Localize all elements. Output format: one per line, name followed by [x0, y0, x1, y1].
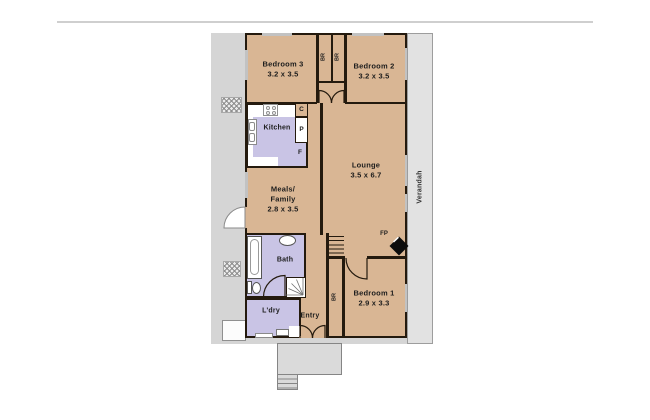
fireplace-label: FP: [380, 231, 388, 237]
entry-label: Entry: [301, 311, 320, 320]
room-name: Meals/: [271, 184, 295, 193]
door-arc: [332, 91, 345, 104]
fireplace-icon: [390, 237, 409, 256]
bedroom3-label: Bedroom 3 3.2 x 3.5: [263, 59, 304, 79]
room-dims: 3.2 x 3.5: [358, 71, 389, 80]
room-name: Bedroom 3: [263, 59, 304, 68]
meals-family-label: Meals/ Family 2.8 x 3.5: [268, 184, 299, 213]
plan-overlay: [0, 0, 650, 420]
door-arc: [319, 91, 332, 104]
exterior-door-arc: [224, 207, 245, 228]
room-dims: 3.5 x 6.7: [351, 170, 382, 179]
robe-label: BR: [321, 53, 327, 61]
fridge-label: F: [298, 150, 302, 157]
lounge-label: Lounge 3.5 x 6.7: [351, 160, 382, 180]
door-arc: [300, 326, 313, 339]
room-name: Bedroom 1: [354, 288, 395, 297]
room-name: Family: [271, 194, 296, 203]
room-dims: 2.9 x 3.3: [358, 298, 389, 307]
door-arc: [264, 276, 286, 298]
shower-fan-icon: [286, 278, 303, 295]
room-dims: 2.8 x 3.5: [268, 204, 299, 213]
kitchen-label: Kitchen: [263, 123, 290, 132]
pantry-label: P: [299, 127, 303, 134]
bedroom1-label: Bedroom 1 2.9 x 3.3: [354, 288, 395, 308]
laundry-label: L'dry: [262, 306, 280, 315]
door-arc: [346, 258, 367, 279]
bedroom2-label: Bedroom 2 3.2 x 3.5: [354, 61, 395, 81]
robe-label: BR: [335, 53, 341, 61]
room-name: Bedroom 2: [354, 61, 395, 70]
room-name: Lounge: [352, 160, 380, 169]
bath-label: Bath: [277, 255, 293, 264]
cupboard-label: C: [299, 107, 304, 114]
floorplan-canvas: Bedroom 3 3.2 x 3.5 Bedroom 2 3.2 x 3.5 …: [0, 0, 650, 420]
room-dims: 3.2 x 3.5: [267, 69, 298, 78]
door-arc: [313, 326, 326, 339]
robe-label: BR: [332, 293, 338, 301]
verandah-label: Verandah: [415, 170, 424, 203]
